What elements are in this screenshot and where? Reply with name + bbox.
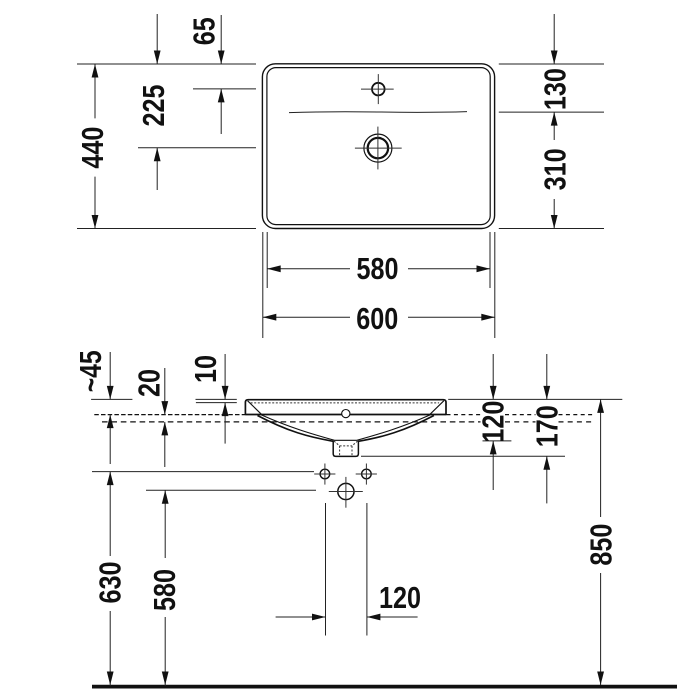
svg-text:225: 225 [137,84,171,126]
svg-text:10: 10 [189,355,223,383]
svg-text:20: 20 [133,369,167,397]
svg-text:440: 440 [76,127,110,169]
svg-text:630: 630 [93,562,127,604]
svg-text:65: 65 [188,17,222,45]
svg-text:120: 120 [379,581,421,615]
svg-text:130: 130 [538,68,572,110]
svg-text:600: 600 [356,302,398,336]
svg-text:580: 580 [357,252,399,286]
svg-text:170: 170 [531,405,565,447]
svg-text:580: 580 [148,569,182,611]
svg-text:~45: ~45 [74,350,108,392]
svg-text:850: 850 [585,524,619,566]
svg-text:120: 120 [477,401,511,443]
svg-text:310: 310 [539,148,573,190]
